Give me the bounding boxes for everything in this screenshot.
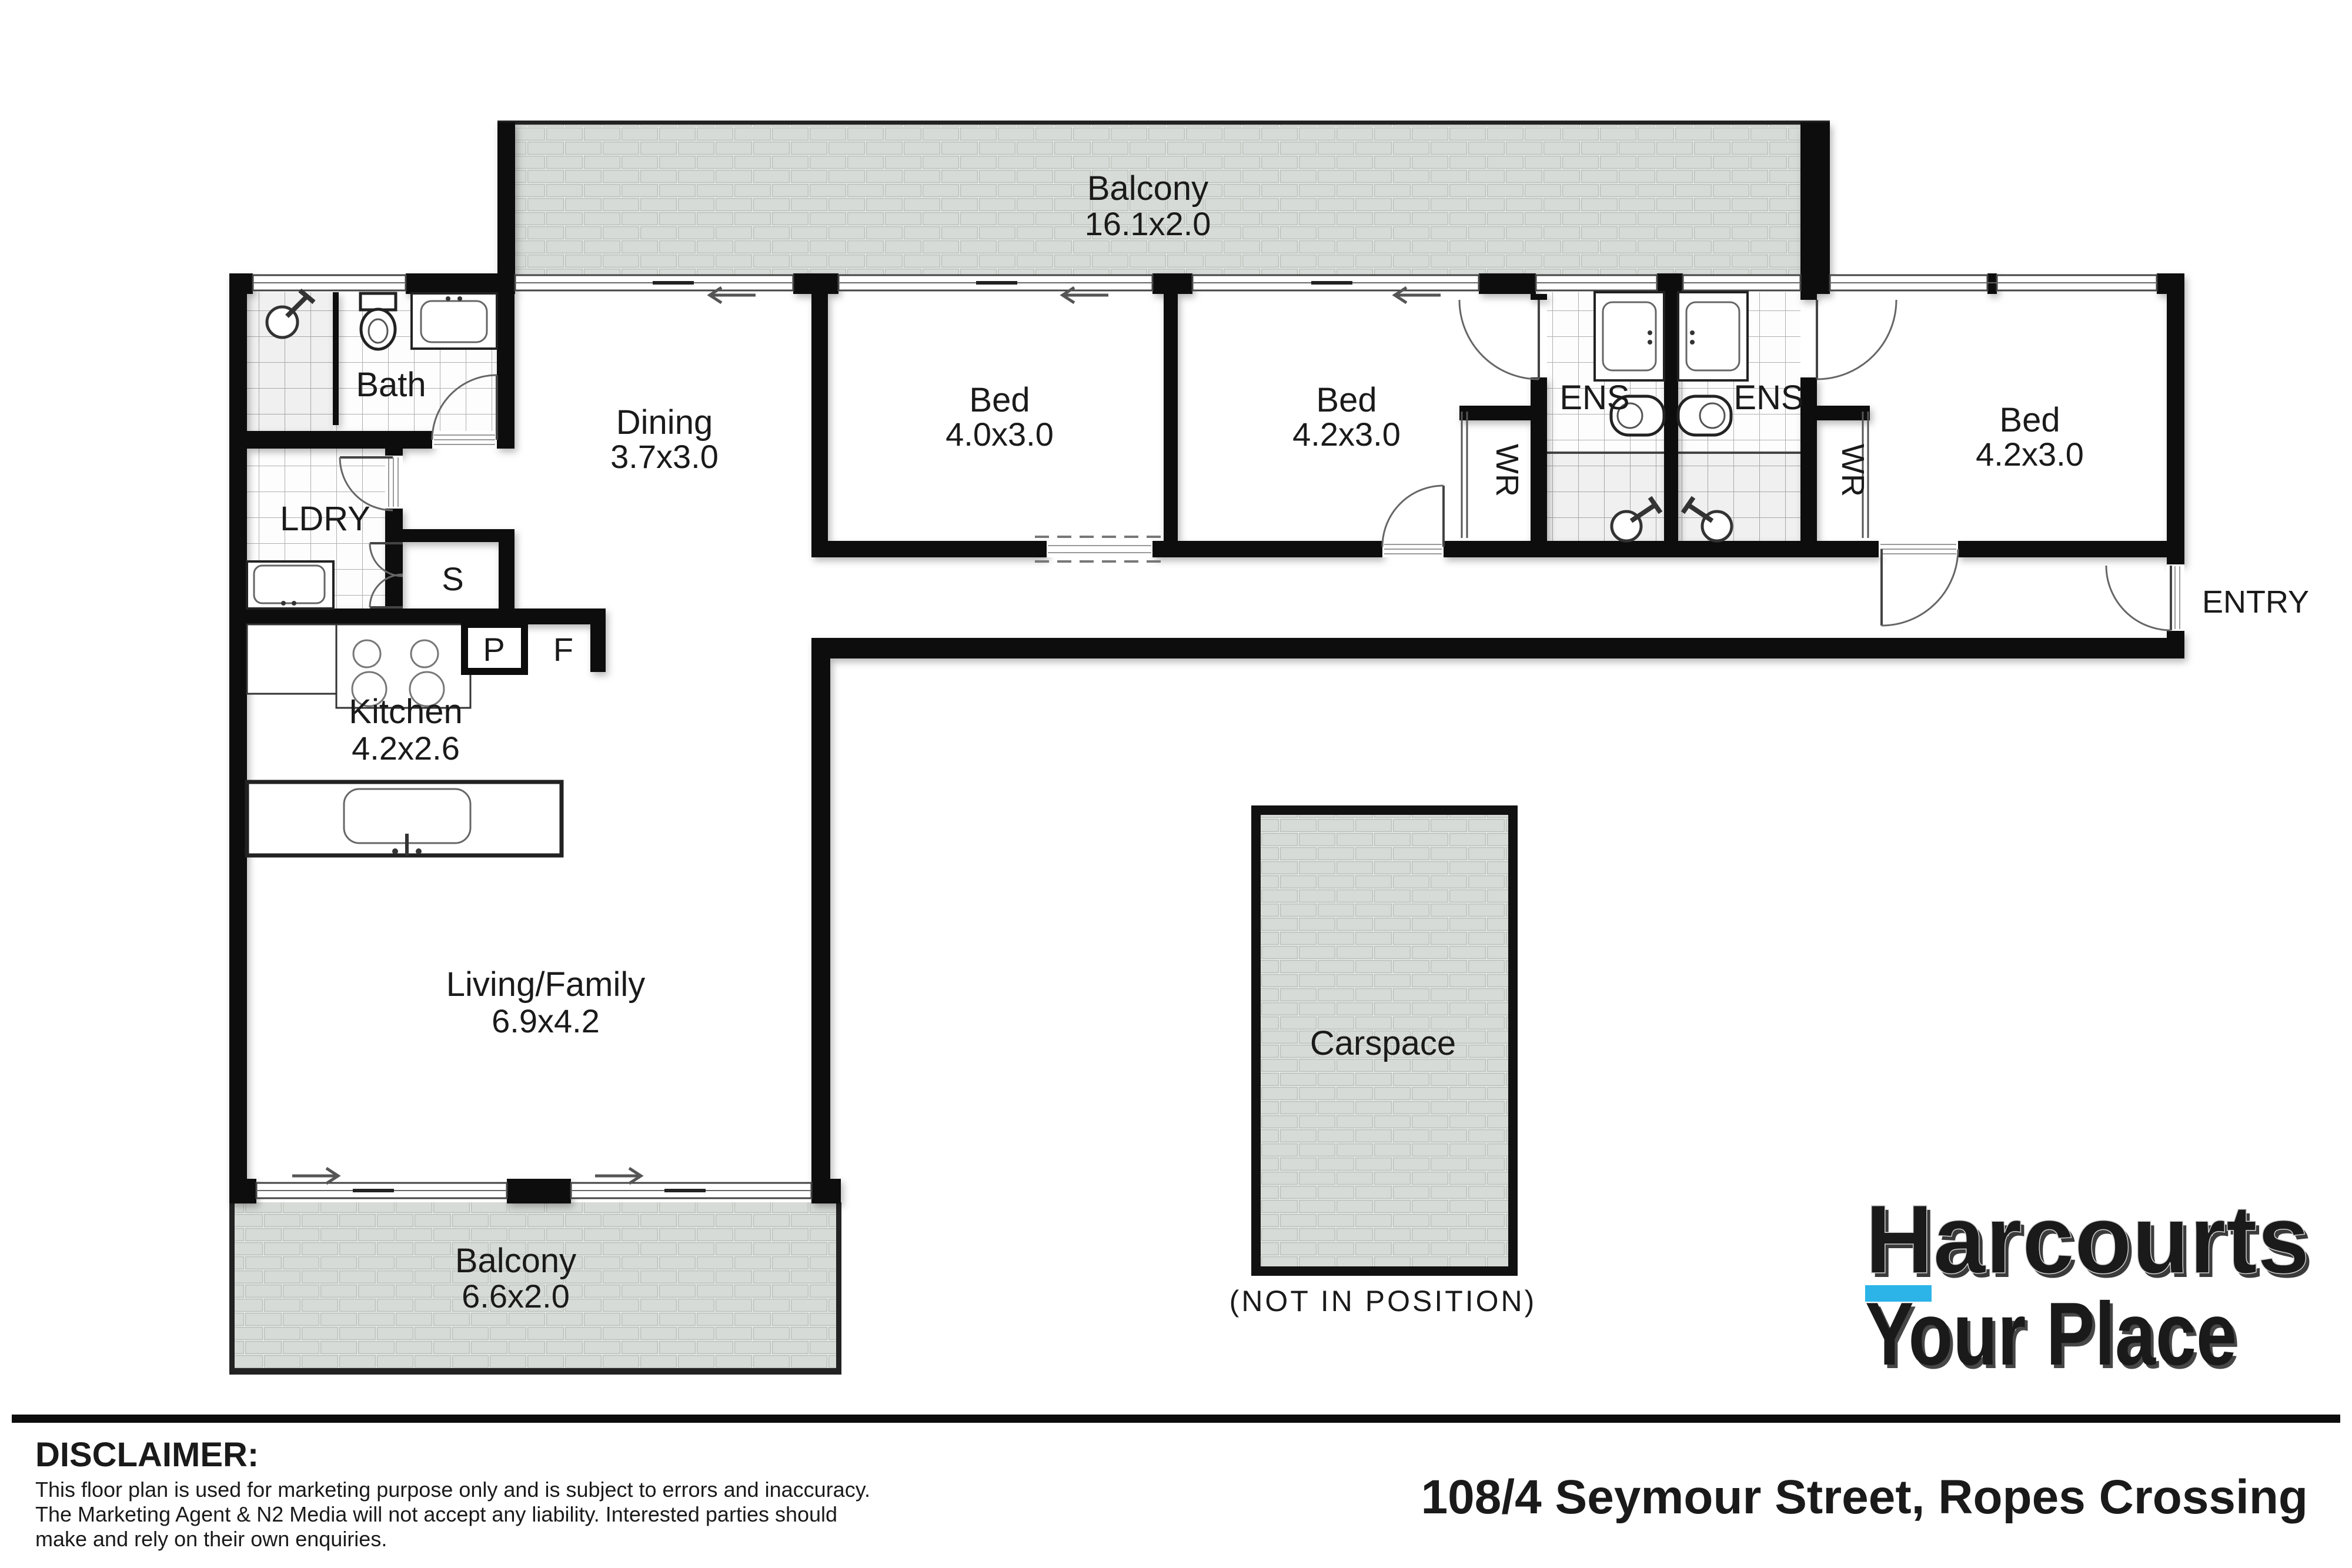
toilet-icon <box>360 293 396 349</box>
wardrobe-slider-left <box>1462 412 1467 538</box>
carspace-note: (NOT IN POSITION) <box>1230 1285 1537 1318</box>
balcony-top-label: Balcony <box>1087 169 1208 208</box>
bed3-ens-door <box>1817 300 1896 379</box>
kitchen-label: Kitchen <box>349 693 462 731</box>
entry-door <box>2106 566 2171 630</box>
bed3-hall-door <box>1882 549 1958 626</box>
bed2-ens-door <box>1459 300 1539 379</box>
disclaimer-line: make and rely on their own enquiries. <box>35 1527 387 1551</box>
disclaimer-heading: DISCLAIMER: <box>35 1436 259 1474</box>
balcony-bottom-dims: 6.6x2.0 <box>462 1278 570 1315</box>
floor-plan-page: Balcony 16.1x2.0 Bath LDRY S P F Dining … <box>0 0 2352 1568</box>
property-address: 108/4 Seymour Street, Ropes Crossing <box>1421 1470 2308 1524</box>
balcony-top-dims: 16.1x2.0 <box>1085 205 1211 242</box>
brand-name: Harcourts <box>1865 1185 2310 1294</box>
bed3-label: Bed <box>1999 401 2060 439</box>
bath-label: Bath <box>356 366 426 404</box>
carspace-label: Carspace <box>1310 1024 1456 1062</box>
footer-divider <box>12 1415 2340 1423</box>
island-bench <box>247 782 562 855</box>
living-label: Living/Family <box>446 965 645 1004</box>
pantry-label: P <box>483 631 505 668</box>
fridge-label: F <box>553 631 573 668</box>
bed1-dims: 4.0x3.0 <box>946 416 1054 453</box>
ens-right-label: ENS <box>1733 379 1803 417</box>
arrow-right-icon <box>292 1168 338 1183</box>
bed1-label: Bed <box>969 381 1030 419</box>
bed2-label: Bed <box>1316 381 1377 419</box>
ens-right-vanity <box>1678 292 1748 380</box>
windows <box>253 275 2157 1198</box>
entry-label: ENTRY <box>2202 584 2309 620</box>
ens-left-label: ENS <box>1559 379 1629 417</box>
ens-left-vanity <box>1595 292 1664 380</box>
ens-right-toilet <box>1678 396 1731 435</box>
living-dims: 6.9x4.2 <box>492 1002 600 1039</box>
wr-right-label: WR <box>1835 444 1870 497</box>
kitchen-dims: 4.2x2.6 <box>352 730 460 767</box>
bed2-dims: 4.2x3.0 <box>1292 416 1401 453</box>
bed3-dims: 4.2x3.0 <box>1976 436 2084 473</box>
brand-logo: Harcourts Harcourts Your Place Your Plac… <box>1865 1185 2313 1388</box>
arrow-right-icon <box>595 1168 641 1183</box>
bed2-hall-door <box>1382 486 1444 547</box>
disclaimer-line: The Marketing Agent & N2 Media will not … <box>35 1502 837 1526</box>
floor-plan-canvas: Balcony 16.1x2.0 Bath LDRY S P F Dining … <box>0 0 2352 1568</box>
wr-left-label: WR <box>1489 444 1525 497</box>
dining-label: Dining <box>616 403 713 442</box>
disclaimer-line: This floor plan is used for marketing pu… <box>35 1477 870 1502</box>
footer: DISCLAIMER: This floor plan is used for … <box>12 1415 2340 1551</box>
balcony-bottom-label: Balcony <box>455 1242 576 1280</box>
laundry-label: LDRY <box>280 500 370 538</box>
window-band-top <box>253 275 2157 290</box>
office-name: Your Place <box>1865 1284 2237 1384</box>
dining-dims: 3.7x3.0 <box>610 438 719 475</box>
bath-vanity <box>412 293 497 349</box>
laundry-tub <box>247 561 333 609</box>
storage-label: S <box>442 560 463 597</box>
